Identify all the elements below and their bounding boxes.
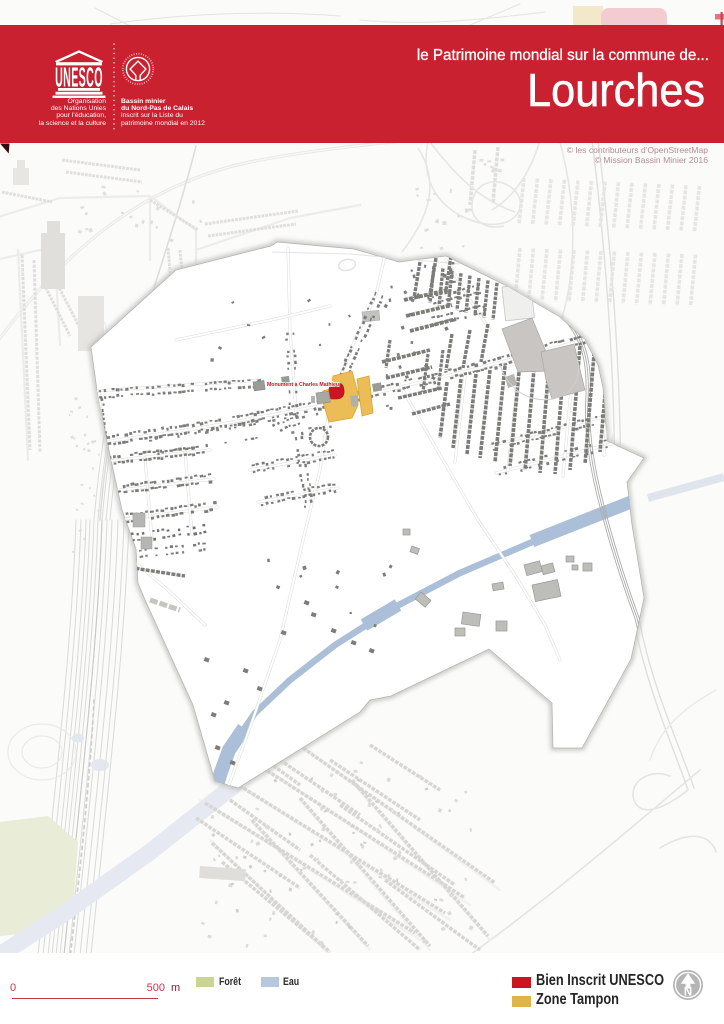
svg-text:N: N xyxy=(684,987,692,999)
svg-text:Monument à Charles Mathieu: Monument à Charles Mathieu xyxy=(267,382,339,388)
